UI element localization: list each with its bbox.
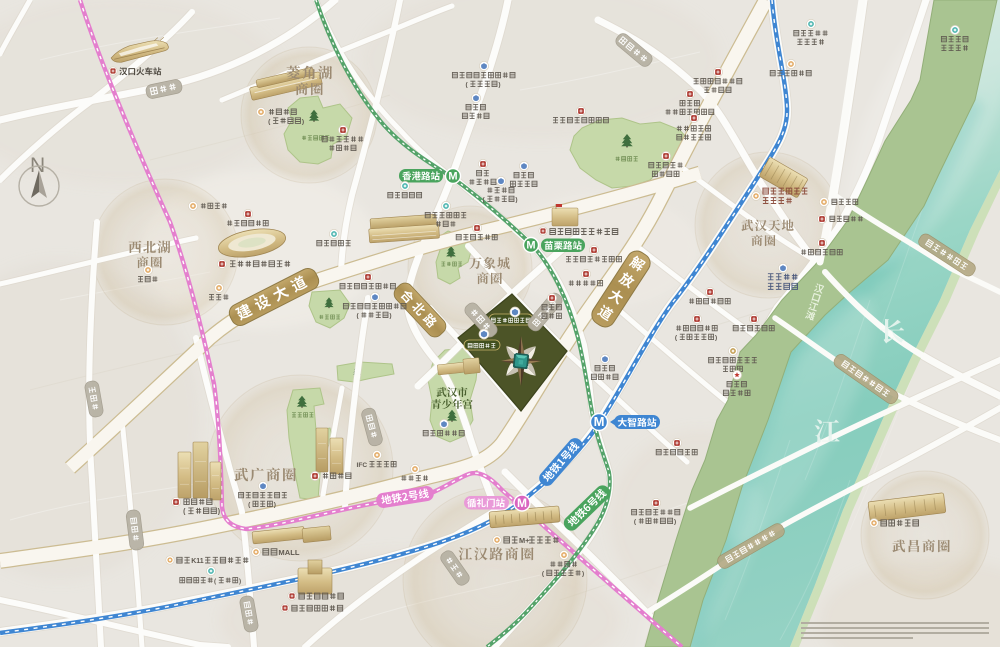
svg-text:M: M xyxy=(594,414,605,429)
svg-text:): ) xyxy=(674,519,676,526)
svg-text:K11: K11 xyxy=(191,558,204,565)
svg-text:): ) xyxy=(582,571,584,578)
svg-text:): ) xyxy=(715,335,717,342)
svg-text:): ) xyxy=(239,578,241,585)
svg-text:IFC: IFC xyxy=(357,462,368,469)
svg-text:MALL: MALL xyxy=(278,548,299,557)
svg-text:M: M xyxy=(526,240,535,252)
svg-text:): ) xyxy=(515,197,517,204)
svg-text:): ) xyxy=(498,82,500,89)
svg-text:M: M xyxy=(448,171,457,183)
svg-text:M+: M+ xyxy=(519,536,530,545)
svg-text:): ) xyxy=(302,118,304,125)
svg-text:): ) xyxy=(274,502,276,509)
svg-text:): ) xyxy=(389,313,391,320)
svg-text:): ) xyxy=(218,509,220,516)
svg-text:M: M xyxy=(517,496,527,510)
